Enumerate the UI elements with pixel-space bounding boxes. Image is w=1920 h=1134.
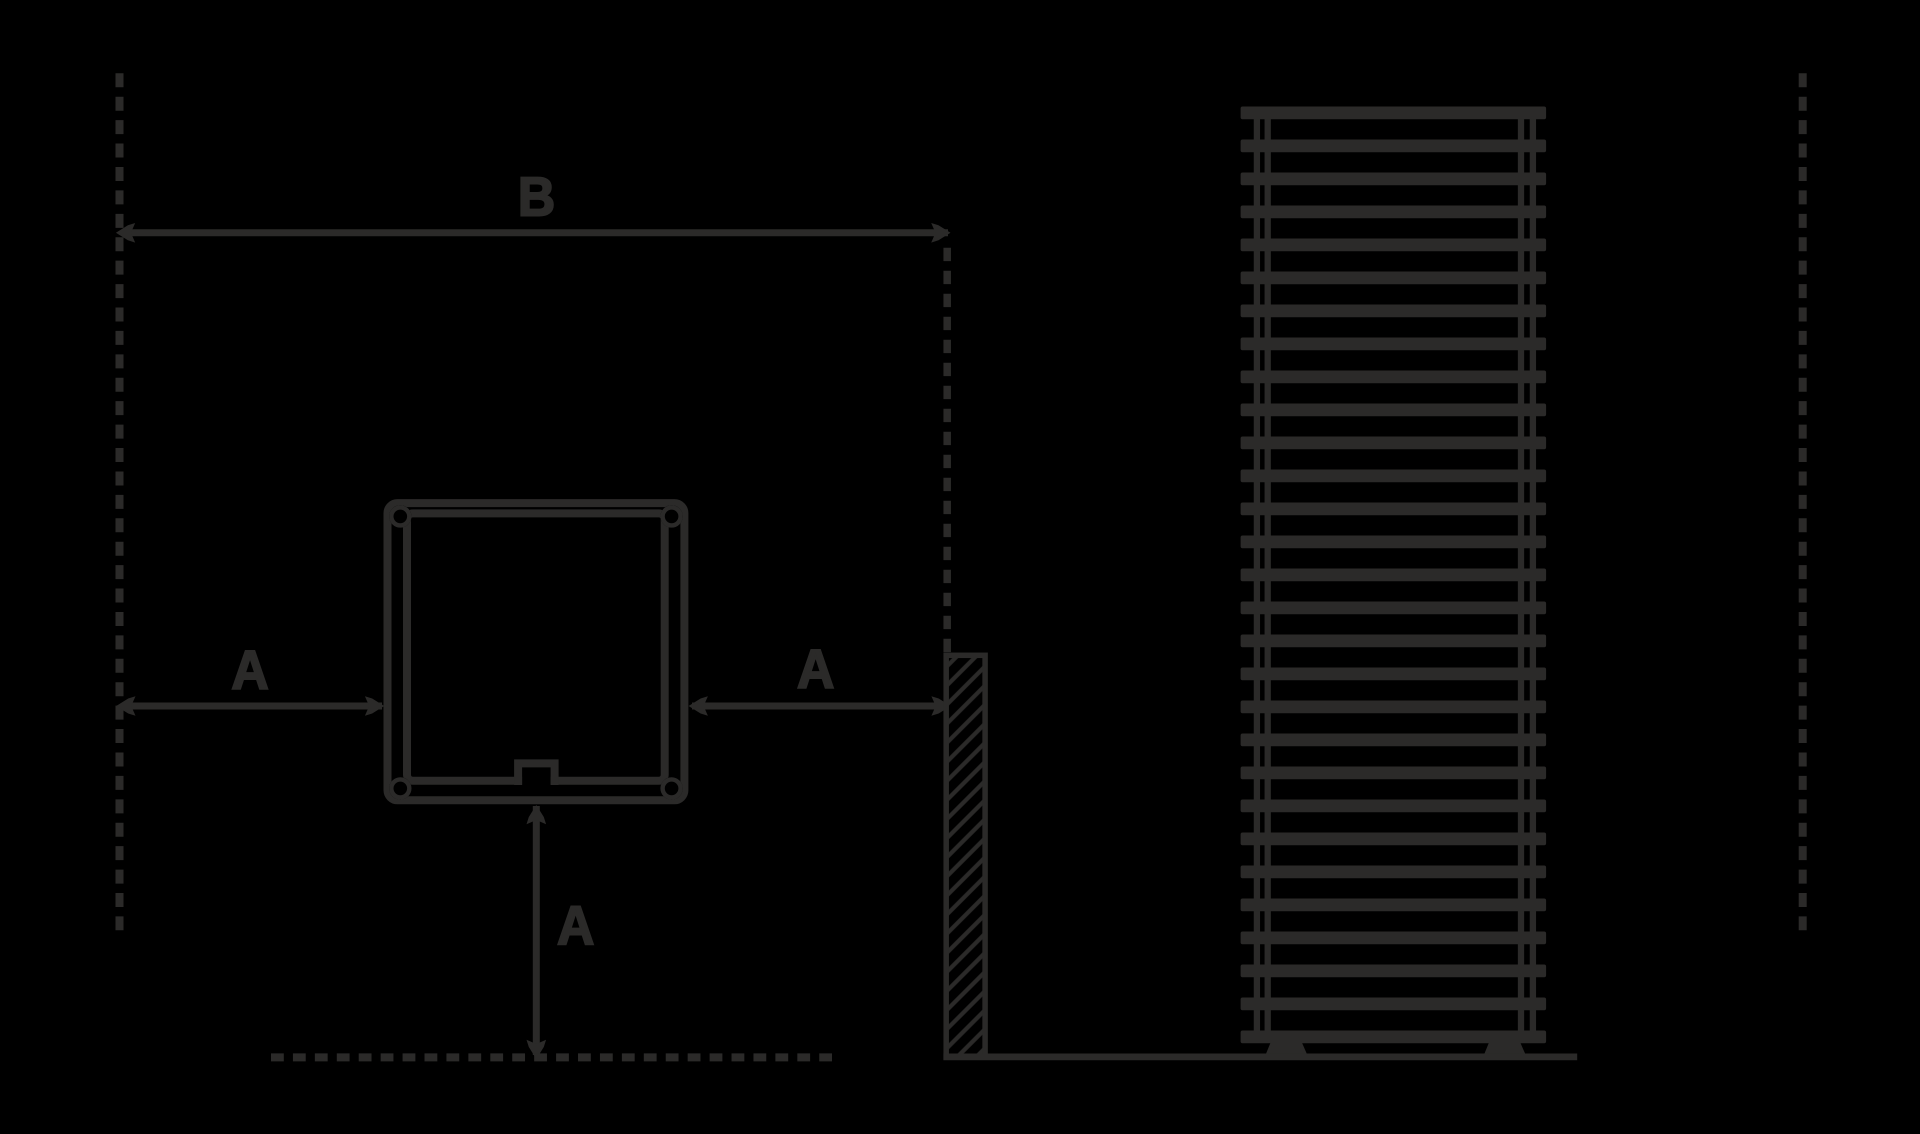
svg-text:B: B	[518, 167, 555, 228]
svg-text:A: A	[231, 640, 268, 701]
svg-text:A: A	[557, 895, 594, 956]
svg-text:A: A	[797, 639, 834, 700]
